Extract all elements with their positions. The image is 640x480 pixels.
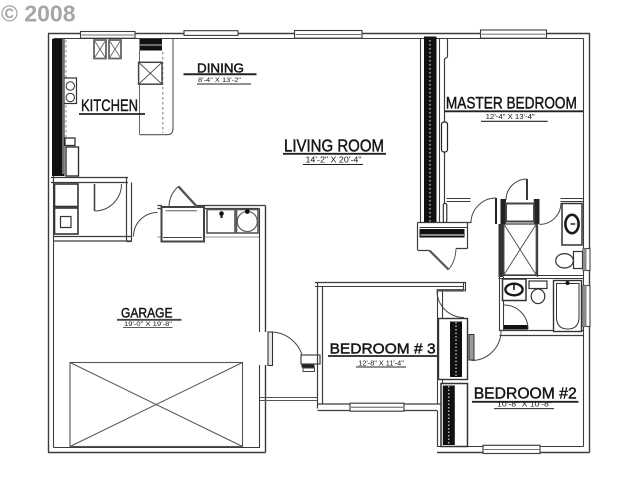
svg-text:GARAGE: GARAGE (121, 306, 173, 321)
svg-text:12'-4" X 13'-4": 12'-4" X 13'-4" (486, 112, 535, 121)
svg-text:19'-0" X 19'-8": 19'-0" X 19'-8" (124, 321, 172, 328)
svg-text:14'-2" X 20'-4": 14'-2" X 20'-4" (306, 156, 362, 165)
svg-text:BEDROOM #2: BEDROOM #2 (474, 386, 577, 403)
svg-text:8'-4" X 13'-2": 8'-4" X 13'-2" (198, 77, 242, 84)
svg-text:KITCHEN: KITCHEN (81, 96, 138, 115)
svg-text:© 2008: © 2008 (1, 1, 76, 27)
svg-text:MASTER BEDROOM: MASTER BEDROOM (446, 95, 577, 113)
svg-text:LIVING ROOM: LIVING ROOM (284, 135, 384, 155)
svg-text:10'-8" X 10'-8": 10'-8" X 10'-8" (497, 402, 553, 409)
svg-text:DINING: DINING (197, 61, 244, 75)
svg-text:12'-8" X 11'-4": 12'-8" X 11'-4" (358, 360, 404, 367)
